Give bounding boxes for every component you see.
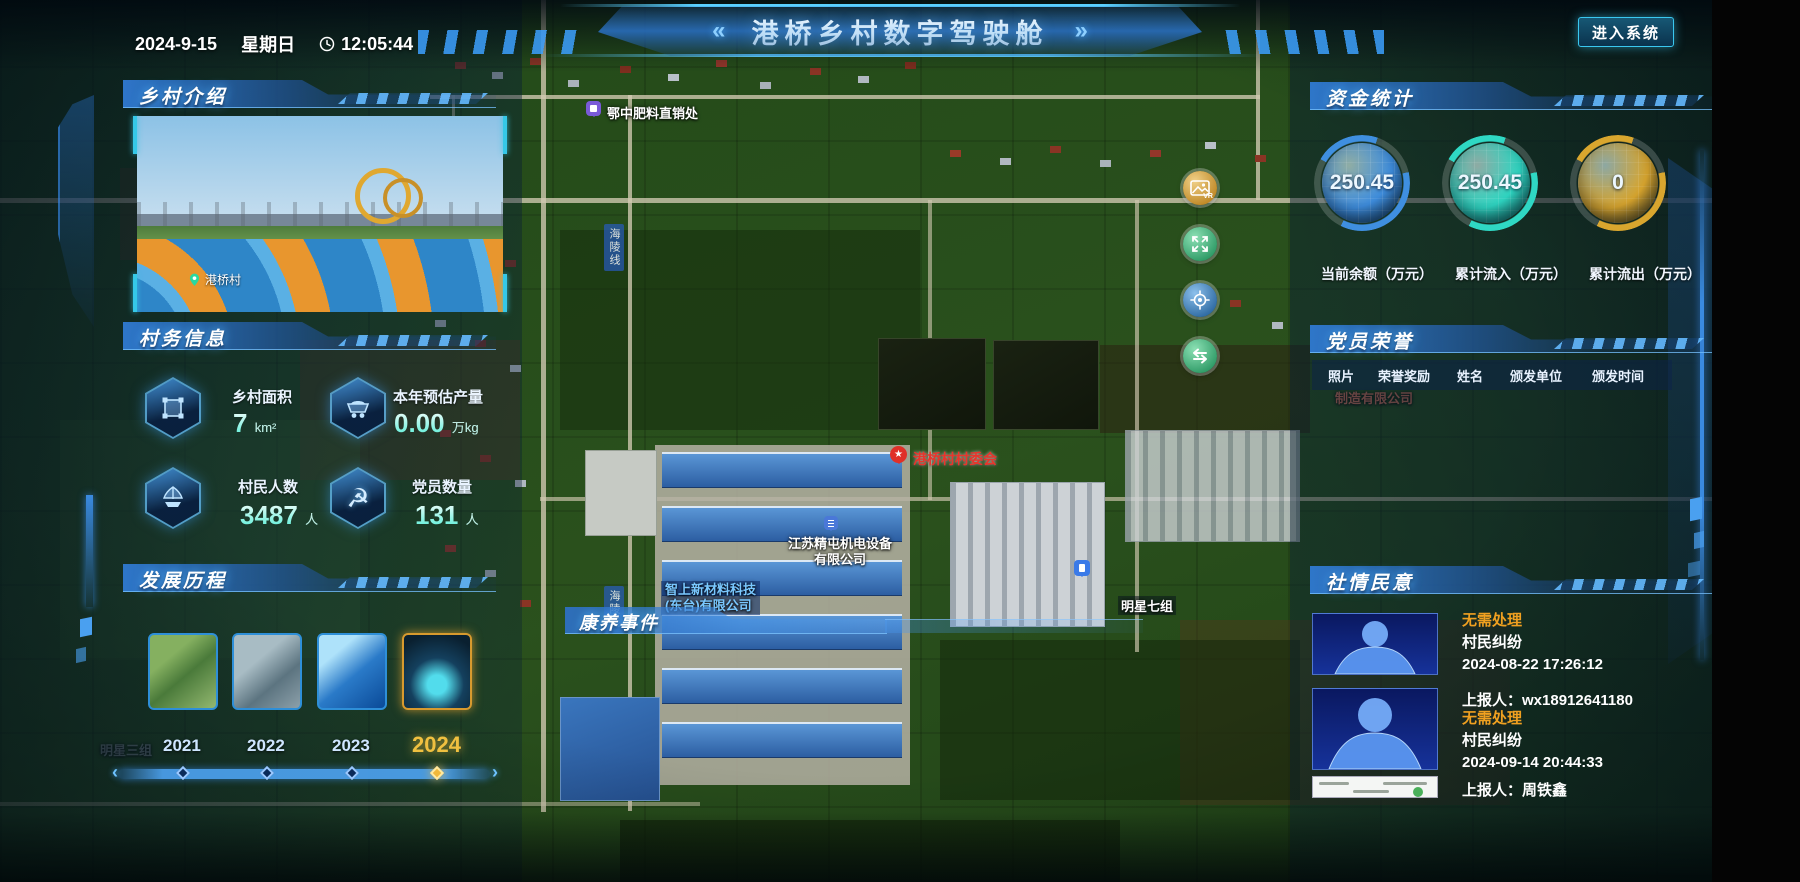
- honors-table-header: 照片 荣誉奖励 姓名 颁发单位 颁发时间: [1312, 360, 1672, 390]
- photo-corner-bracket: [133, 274, 137, 312]
- column-name: 姓名: [1457, 366, 1483, 385]
- road-name-tag: 海陵线: [604, 224, 624, 271]
- warehouse-roof: [950, 482, 1105, 627]
- reporter-label: 上报人：: [1462, 692, 1522, 709]
- chat-avatar-dot: [1413, 787, 1423, 797]
- history-panel-title: 发展历程: [139, 566, 227, 593]
- map-road: [541, 0, 546, 812]
- stat-label: 乡村面积: [232, 386, 292, 407]
- cart-icon: [344, 396, 372, 420]
- fertilizer-shop-label: 鄂中肥料直销处: [607, 103, 698, 122]
- status-badge: 无需处理: [1462, 708, 1603, 730]
- gauge-value: 250.45: [1314, 135, 1410, 231]
- reporter-avatar[interactable]: [1312, 688, 1438, 770]
- stat-unit: 人: [466, 512, 479, 527]
- right-chevrons-deco: »: [1075, 17, 1088, 45]
- reporter-name: wx18912641180: [1522, 692, 1633, 709]
- company1-line2: 有限公司: [788, 552, 892, 568]
- history-thumb-2021[interactable]: [148, 633, 218, 710]
- right-frame-dash: [1690, 497, 1702, 522]
- company-icon-pin[interactable]: [824, 516, 838, 530]
- document-icon: [1079, 564, 1085, 572]
- reporter-label: 上报人：: [1462, 782, 1522, 799]
- village-info-panel-title: 村务信息: [139, 324, 227, 351]
- left-frame-dash: [76, 647, 86, 663]
- map-road: [1135, 200, 1139, 652]
- time-text: 12:05:44: [341, 34, 413, 55]
- event-time: 2024-08-22 17:26:12: [1462, 654, 1603, 676]
- company1-label: 江苏精屯机电设备 有限公司: [788, 536, 892, 568]
- reporter-avatar[interactable]: [1312, 613, 1438, 675]
- stat-unit: 人: [305, 512, 318, 527]
- outflow-gauge: 0: [1570, 135, 1666, 231]
- person-silhouette-icon: [1313, 614, 1437, 674]
- company1-line1: 江苏精屯机电设备: [788, 536, 892, 552]
- header-stripes-left: [418, 30, 586, 54]
- expand-icon: [1191, 235, 1209, 253]
- balance-label: 当前余额（万元）: [1310, 264, 1444, 284]
- clock-icon: [319, 36, 335, 52]
- factory-roof: [662, 452, 902, 488]
- column-issuer: 颁发单位: [1510, 366, 1562, 385]
- event-time: 2024-09-14 20:44:33: [1462, 752, 1603, 774]
- photo-caption-text: 港桥村: [205, 271, 241, 288]
- right-black-bar: [1712, 0, 1800, 882]
- panel-header-stripes: [338, 93, 488, 104]
- blue-pond: [560, 697, 660, 801]
- stat-number: 7: [233, 408, 247, 438]
- honors-panel-header: 党员荣誉: [1310, 325, 1712, 353]
- factory-roof: [662, 668, 902, 704]
- stat-hexagon: [330, 377, 386, 439]
- stat-value: 0.00 万kg: [394, 408, 479, 439]
- sentiment-item[interactable]: 无需处理 村民纠纷 2024-08-22 17:26:12: [1462, 610, 1603, 676]
- stat-label: 村民人数: [238, 476, 298, 497]
- event-category: 村民纠纷: [1462, 730, 1603, 752]
- gauge-value: 250.45: [1442, 135, 1538, 231]
- timeline-left-arrow[interactable]: ‹: [112, 762, 118, 783]
- year-2022[interactable]: 2022: [247, 736, 285, 756]
- vr-panorama-button[interactable]: VR: [1183, 171, 1217, 205]
- photo-corner-bracket: [503, 274, 507, 312]
- year-2021[interactable]: 2021: [163, 736, 201, 756]
- honors-panel-title: 党员荣誉: [1326, 327, 1414, 354]
- funds-panel-header: 资金统计: [1310, 82, 1712, 110]
- refresh-button[interactable]: [1183, 339, 1217, 373]
- group7-pin[interactable]: [1074, 560, 1090, 576]
- history-panel-header: 发展历程: [123, 564, 496, 592]
- sentiment-panel-header: 社情民意: [1310, 566, 1712, 594]
- group7-label: 明星七组: [1118, 596, 1176, 615]
- photo-caption: 港桥村: [189, 271, 241, 288]
- map-pond: [878, 338, 986, 430]
- vr-label: VR: [1203, 193, 1213, 200]
- stat-hexagon: [145, 377, 201, 439]
- village-photo[interactable]: 港桥村: [137, 116, 503, 312]
- intro-panel-title: 乡村介绍: [139, 82, 227, 109]
- fertilizer-shop-pin[interactable]: [586, 101, 601, 116]
- photo-corner-bracket: [503, 116, 507, 154]
- stat-unit: km²: [255, 420, 277, 435]
- stat-label: 党员数量: [412, 476, 472, 497]
- column-date: 颁发时间: [1592, 366, 1644, 385]
- bottom-shade: [0, 812, 1712, 882]
- column-award: 荣誉奖励: [1378, 366, 1430, 385]
- history-thumb-2023[interactable]: [317, 633, 387, 710]
- stat-number: 0.00: [394, 408, 445, 438]
- person-silhouette-icon: [1313, 689, 1437, 769]
- date-text: 2024-9-15: [135, 34, 217, 55]
- funds-panel-title: 资金统计: [1326, 84, 1414, 111]
- stat-number: 3487: [240, 500, 298, 530]
- reporter-name: 周铁鑫: [1522, 782, 1567, 799]
- land-area-icon: [160, 395, 186, 421]
- stat-hexagon: [145, 467, 201, 529]
- stat-number: 131: [415, 500, 458, 530]
- left-frame-bar: [86, 495, 93, 607]
- inflow-label: 累计流入（万元）: [1444, 264, 1578, 284]
- stat-unit: 万kg: [452, 420, 479, 435]
- village-committee-pin[interactable]: ★: [890, 446, 907, 463]
- village-committee-label: 港桥村村委会: [913, 449, 997, 469]
- page-title: 港桥乡村数字驾驶舱: [752, 12, 1049, 51]
- sentiment-item[interactable]: 无需处理 村民纠纷 2024-09-14 20:44:33: [1462, 708, 1603, 774]
- inflow-gauge: 250.45: [1442, 135, 1538, 231]
- factory-roof: [662, 722, 902, 758]
- balance-gauge: 250.45: [1314, 135, 1410, 231]
- column-photo: 照片: [1328, 366, 1354, 385]
- right-frame-dash: [1694, 531, 1704, 549]
- event-category: 村民纠纷: [1462, 632, 1603, 654]
- photo-sky: [137, 116, 503, 214]
- warehouse-roof: [1125, 430, 1300, 542]
- chat-screenshot-thumb[interactable]: [1312, 776, 1438, 798]
- swap-arrows-icon: [1190, 348, 1210, 364]
- stat-value: 131 人: [415, 500, 479, 531]
- shop-icon: [590, 105, 597, 112]
- chat-line: [1319, 782, 1349, 785]
- field-patch: [940, 640, 1300, 800]
- star-icon: ★: [894, 450, 903, 460]
- village-info-panel-header: 村务信息: [123, 322, 496, 350]
- stat-hexagon: ☭: [330, 467, 386, 529]
- panel-header-stripes: [1554, 95, 1704, 106]
- sentiment-panel-title: 社情民意: [1326, 568, 1414, 595]
- panel-header-stripes: [1554, 338, 1704, 349]
- chat-line: [1383, 782, 1427, 785]
- header-banner: « 港桥乡村数字驾驶舱 »: [598, 6, 1202, 56]
- photo-corner-bracket: [133, 116, 137, 154]
- stat-label: 本年预估产量: [393, 386, 483, 407]
- panel-header-stripes: [1554, 579, 1704, 590]
- company2-line1: 智上新材料科技: [665, 582, 756, 598]
- history-thumb-2022[interactable]: [232, 633, 302, 710]
- fullscreen-button[interactable]: [1183, 227, 1217, 261]
- header-stripes-right: [1216, 30, 1384, 54]
- gauge-value: 0: [1570, 135, 1666, 231]
- photo-ring-sculpture: [383, 178, 423, 218]
- panel-header-stripes: [338, 335, 488, 346]
- locate-button[interactable]: [1183, 283, 1217, 317]
- reporter-line: 上报人：周铁鑫: [1462, 780, 1567, 802]
- chat-line: [1353, 790, 1389, 793]
- stat-value: 3487 人: [240, 500, 318, 531]
- datetime-bar: 2024-9-15 星期日 12:05:44: [135, 31, 413, 57]
- year-2023[interactable]: 2023: [332, 736, 370, 756]
- history-thumb-2024[interactable]: [402, 633, 472, 710]
- status-badge: 无需处理: [1462, 610, 1603, 632]
- crosshair-icon: [1190, 290, 1210, 310]
- building-icon: [828, 520, 834, 527]
- hammer-sickle-icon: ☭: [346, 485, 369, 511]
- fund-gauge-labels: 当前余额（万元） 累计流入（万元） 累计流出（万元）: [1310, 264, 1712, 284]
- panel-header-stripes: [338, 577, 488, 588]
- timeline-right-arrow[interactable]: ›: [492, 762, 498, 783]
- location-pin-icon: [189, 273, 200, 287]
- outflow-label: 累计流出（万元）: [1578, 264, 1712, 284]
- year-2024[interactable]: 2024: [412, 732, 461, 758]
- white-building: [585, 450, 657, 536]
- dashboard: 海陵线 海陵线 鄂中肥料直销处 ★ 港桥村村委会 江苏精屯机电设备 有限公司 智…: [0, 0, 1800, 882]
- map-road: [430, 95, 1260, 99]
- stat-value: 7 km²: [233, 408, 276, 439]
- health-events-title: 康养事件: [579, 609, 659, 635]
- intro-panel-header: 乡村介绍: [123, 80, 496, 108]
- sailboat-icon: [160, 485, 186, 511]
- enter-system-button[interactable]: 进入系统: [1578, 17, 1674, 47]
- left-chevrons-deco: «: [712, 17, 725, 45]
- weekday-text: 星期日: [241, 31, 295, 57]
- map-pond: [993, 340, 1099, 430]
- health-events-header-tail: [885, 619, 1143, 633]
- left-frame-dash: [80, 617, 92, 638]
